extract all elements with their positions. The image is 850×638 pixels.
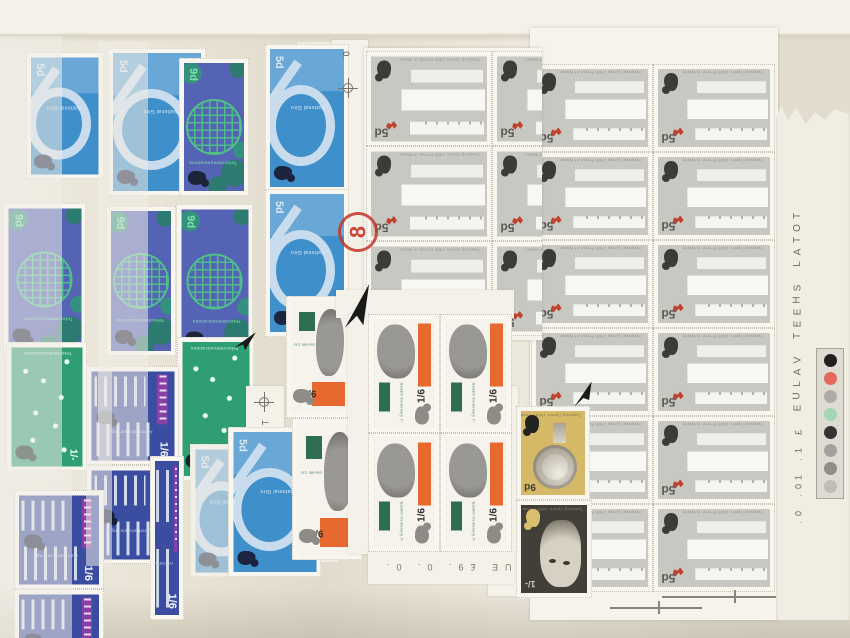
- color-check-dot: [824, 408, 837, 421]
- welsh-dragon-icon: [551, 303, 562, 312]
- stamp-investiture-5d: 5d Tywysog Cymru 1969 Prince of Wales: [531, 152, 653, 240]
- color-check-dot: [824, 462, 837, 475]
- queen-silhouette-icon: [664, 249, 678, 267]
- queen-silhouette-icon: [664, 425, 678, 443]
- stamp-gandhi: Gandhi Centenary Year 19691/6: [368, 314, 440, 433]
- color-check-dot: [824, 480, 837, 493]
- queen-silhouette-icon: [299, 529, 317, 543]
- queen-silhouette-icon: [542, 337, 556, 355]
- stamp-telecommunications-globe: Telecommunications9d: [179, 58, 249, 196]
- queen-silhouette-icon: [664, 161, 678, 179]
- color-check-dot: [824, 372, 837, 385]
- registration-line: [662, 596, 776, 598]
- registration-crosshair: [254, 392, 274, 412]
- queen-silhouette-icon: [542, 161, 556, 179]
- gandhi-green-tablet: [451, 501, 462, 530]
- gandhi-sheet-left-margin: [348, 314, 370, 554]
- stamp-investiture-5d: 5d Tywysog Cymru 1969 Prince of Wales: [492, 146, 542, 241]
- stamp-investiture-5d: 5d Tywysog Cymru 1969 Prince of Wales: [653, 64, 775, 152]
- queen-silhouette-icon: [237, 551, 255, 565]
- stamp-national-giro: National Giro5d: [265, 44, 349, 192]
- queen-silhouette-icon: [503, 155, 517, 173]
- gandhi-green-tablet: [299, 312, 314, 331]
- glassine-strip: [86, 366, 112, 566]
- registration-line: [610, 607, 702, 609]
- stamp-telecommunications-globe: Telecommunications9d: [176, 204, 253, 357]
- registration-tick: [658, 601, 660, 614]
- stamp-investiture-5d: 5d Tywysog Cymru 1969 Prince of Wales: [653, 240, 775, 328]
- welsh-dragon-icon: [512, 215, 523, 224]
- stamp-investiture-5d: 5d Tywysog Cymru 1969 Prince of Wales: [653, 152, 775, 240]
- stamp-automatic-sorting-edge: 1/6Automatic sorting: [150, 456, 184, 620]
- color-check-dot: [824, 390, 837, 403]
- registration-crosshair: [338, 78, 358, 98]
- stamp-gandhi: Gandhi Centenary Year 19691/6: [440, 433, 512, 552]
- gandhi-block: Gandhi Centenary Year 19691/6 Gandhi Cen…: [368, 314, 512, 552]
- margin-total-sheet-value: £ 1. 10. 0.: [796, 428, 802, 527]
- queen-silhouette-icon: [274, 166, 292, 180]
- selvedge-number: 0.: [341, 51, 351, 59]
- queen-silhouette-icon: [542, 73, 556, 91]
- queen-silhouette-icon: [293, 389, 311, 403]
- queen-silhouette-icon: [377, 250, 391, 268]
- color-check-dot: [824, 426, 837, 439]
- queen-silhouette-icon: [377, 60, 391, 78]
- color-check-dot: [824, 354, 837, 367]
- gandhi-green-tablet: [451, 382, 462, 411]
- queen-silhouette-icon: [198, 552, 216, 566]
- stamp-investiture-5d: 5d Tywysog Cymru 1969 Prince of Wales: [653, 328, 775, 416]
- stamp-investiture-1s: 1/-Tywysog Cymru 1969 Prince of Wales: [516, 500, 592, 598]
- queen-silhouette-icon: [542, 249, 556, 267]
- welsh-dragon-icon: [551, 127, 562, 136]
- welsh-dragon-icon: [551, 391, 562, 400]
- stamp-gandhi: Gandhi Centenary Year 19691/6: [440, 314, 512, 433]
- glassine-strip: [0, 36, 62, 478]
- margin-total-sheet-label: TOTAL SHEET VALUE: [794, 210, 802, 414]
- stamp-gandhi: Gandhi Centenary Year 19691/6: [368, 433, 440, 552]
- glassine-strip: [0, 468, 72, 638]
- stamp-investiture-5d: 5d Tywysog Cymru 1969 Prince of Wales: [366, 146, 492, 241]
- welsh-dragon-icon: [673, 391, 684, 400]
- welsh-dragon-icon: [512, 120, 523, 129]
- traffic-light-panel: [816, 348, 844, 499]
- welsh-dragon-icon: [673, 303, 684, 312]
- queen-silhouette-icon: [503, 60, 517, 78]
- stamp-investiture-5d: 5d Tywysog Cymru 1969 Prince of Wales: [531, 328, 653, 416]
- album-page-photo: 5d Tywysog Cymru 1969 Prince of Wales 5d…: [0, 0, 850, 638]
- welsh-dragon-icon: [551, 215, 562, 224]
- queen-silhouette-icon: [525, 415, 539, 433]
- queen-silhouette-icon: [487, 526, 501, 544]
- queen-silhouette-icon: [377, 155, 391, 173]
- queen-silhouette-icon: [664, 73, 678, 91]
- queen-silhouette-icon: [526, 509, 540, 527]
- stamp-investiture-5d: 5d Tywysog Cymru 1969 Prince of Wales: [531, 240, 653, 328]
- queen-silhouette-icon: [487, 407, 501, 425]
- gandhi-green-tablet: [379, 501, 390, 530]
- welsh-dragon-icon: [673, 479, 684, 488]
- welsh-dragon-icon: [386, 215, 397, 224]
- stamp-investiture-5d: 5d Tywysog Cymru 1969 Prince of Wales: [653, 416, 775, 504]
- queen-silhouette-icon: [415, 407, 429, 425]
- gandhi-green-tablet: [379, 382, 390, 411]
- queen-silhouette-icon: [188, 171, 206, 185]
- queen-silhouette-icon: [503, 250, 517, 268]
- welsh-dragon-icon: [386, 120, 397, 129]
- stamp-investiture-5d: 5d Tywysog Cymru 1969 Prince of Wales: [492, 51, 542, 146]
- gandhi-green-tablet: [306, 436, 322, 458]
- registration-tick: [734, 590, 736, 603]
- stamp-investiture-5d: 5d Tywysog Cymru 1969 Prince of Wales: [531, 64, 653, 152]
- queen-silhouette-icon: [664, 337, 678, 355]
- stamp-investiture-9d: 9dTywysog Cymru 1969 Prince of Wales: [516, 406, 590, 500]
- queen-silhouette-icon: [664, 513, 678, 531]
- welsh-dragon-icon: [673, 127, 684, 136]
- color-check-dot: [824, 444, 837, 457]
- gandhi-sheet-value-text: UE £9. 0. 0.: [380, 562, 512, 572]
- stamp-investiture-5d: 5d Tywysog Cymru 1969 Prince of Wales: [653, 504, 775, 592]
- welsh-dragon-icon: [673, 215, 684, 224]
- stamp-investiture-5d: 5d Tywysog Cymru 1969 Prince of Wales: [366, 51, 492, 146]
- queen-silhouette-icon: [415, 526, 429, 544]
